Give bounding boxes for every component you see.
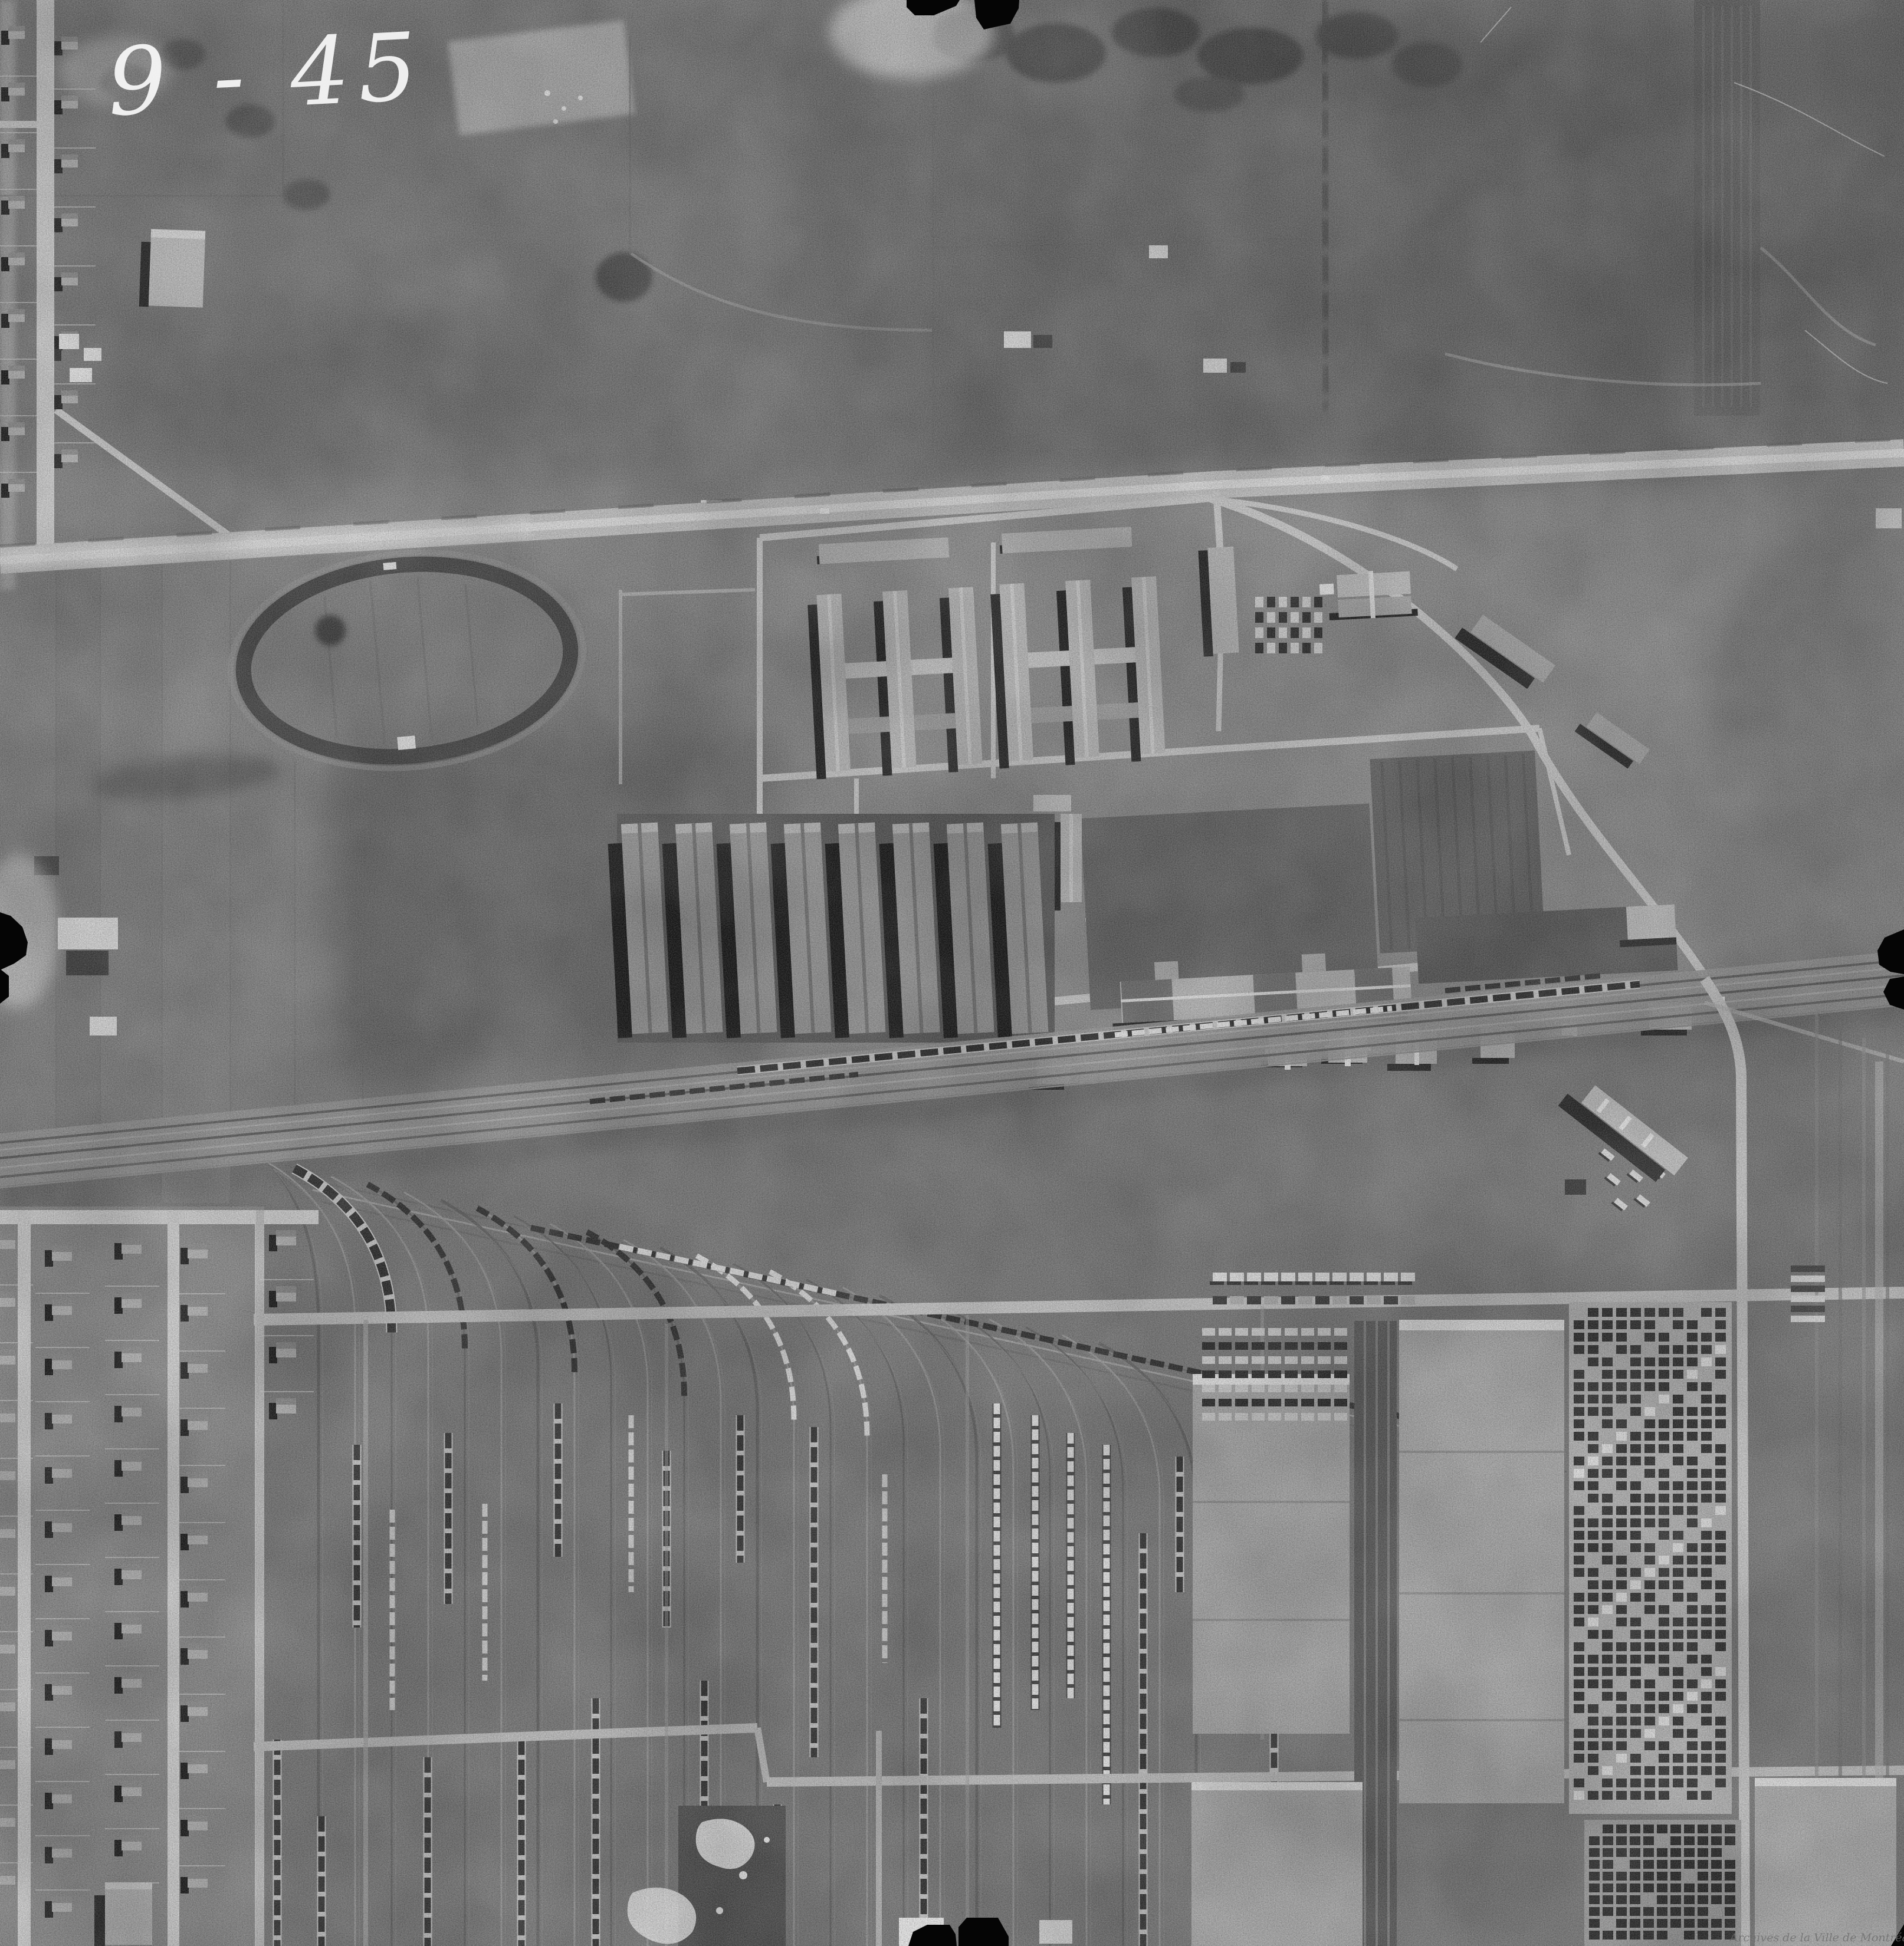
archives-watermark: Archives de la Ville de Montréal xyxy=(1729,1931,1904,1944)
photo-canvas: 9 - 45 Archives de la Ville de Montréal xyxy=(0,0,1904,1946)
grain-light xyxy=(0,0,1904,1946)
aerial-photograph: 9 - 45 Archives de la Ville de Montréal xyxy=(0,0,1904,1946)
film-grain xyxy=(0,0,1904,1946)
handwritten-photo-index: 9 - 45 xyxy=(104,12,428,137)
